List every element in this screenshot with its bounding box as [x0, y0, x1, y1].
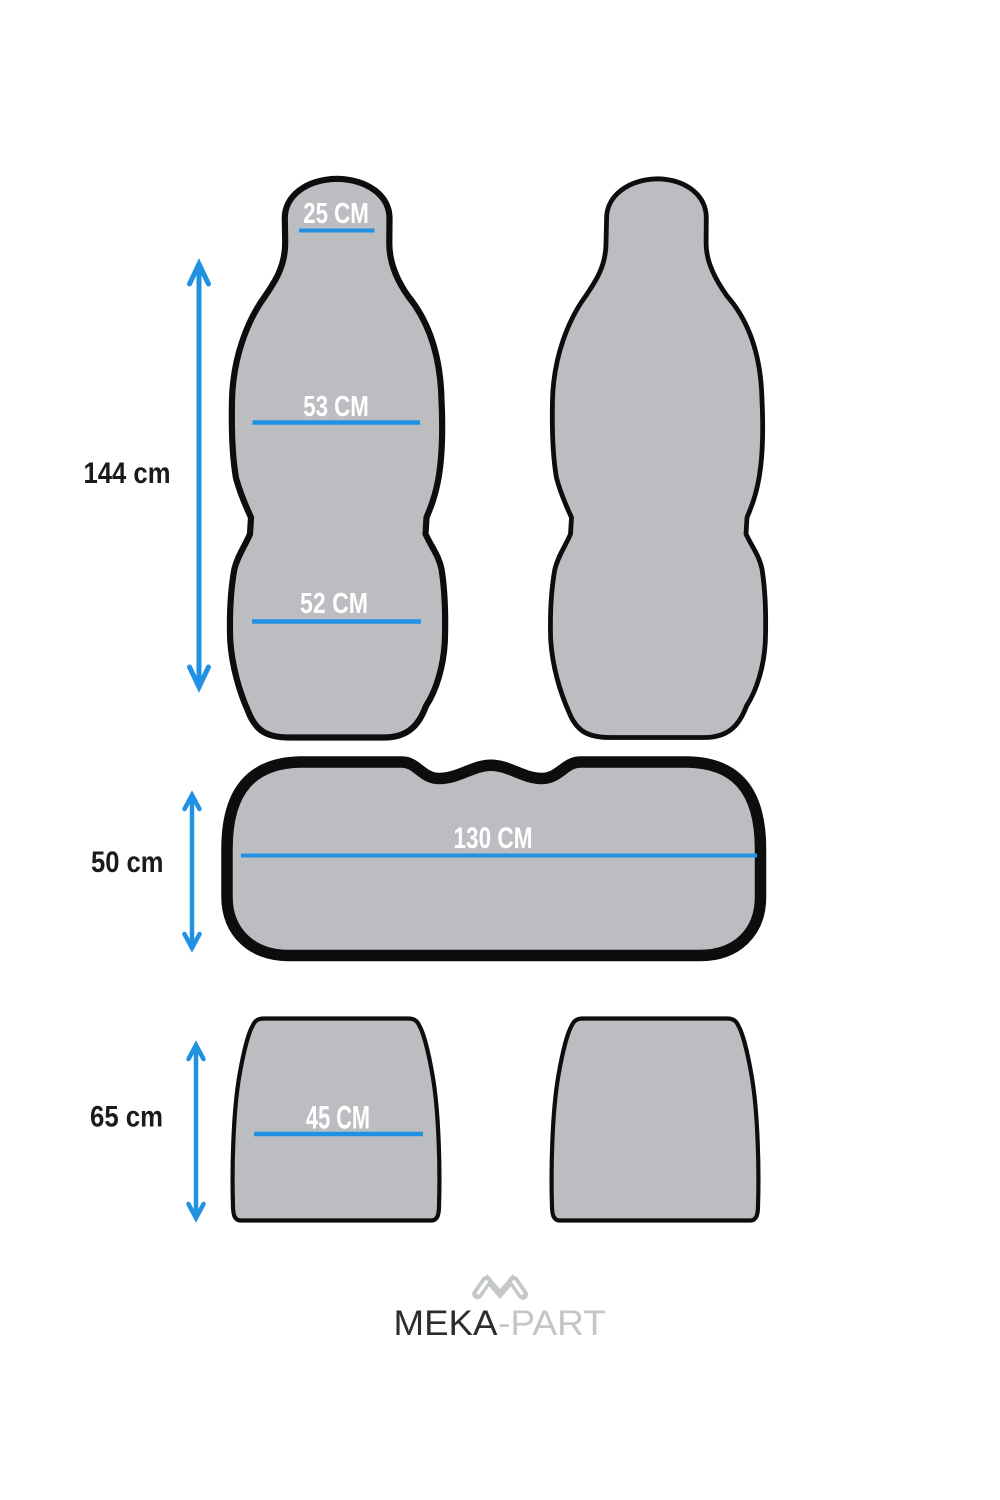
svg-text:130 CM: 130 CM: [454, 822, 533, 855]
svg-text:52 CM: 52 CM: [300, 588, 368, 620]
svg-text:MEKA: MEKA: [394, 1304, 499, 1343]
svg-text:-PART: -PART: [498, 1304, 606, 1343]
svg-text:25 CM: 25 CM: [303, 198, 369, 230]
svg-text:53 CM: 53 CM: [303, 391, 369, 423]
svg-text:144 cm: 144 cm: [84, 457, 171, 490]
svg-text:45 CM: 45 CM: [306, 1100, 370, 1136]
svg-text:50 cm: 50 cm: [91, 846, 164, 879]
svg-text:65 cm: 65 cm: [90, 1101, 163, 1134]
